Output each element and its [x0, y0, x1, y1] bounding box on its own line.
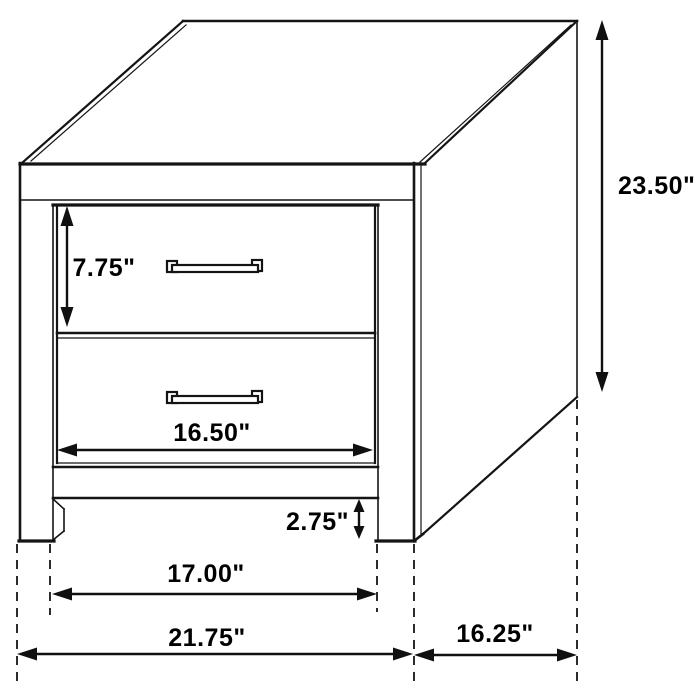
- arrowhead-left: [414, 649, 434, 662]
- handle-bar: [172, 396, 258, 403]
- dim-label-drawer-opening-width: 16.50": [173, 419, 250, 447]
- handle-bar: [172, 265, 258, 272]
- dim-overall-height: 23.50": [596, 20, 696, 392]
- left-leg-foot-detail: [53, 499, 64, 540]
- foot-top-diagonal: [53, 499, 64, 509]
- arrowhead-right: [393, 648, 413, 661]
- arrowhead-left: [52, 588, 72, 601]
- arrowhead-right: [357, 588, 377, 601]
- dim-label-foot-clearance: 2.75": [286, 508, 349, 536]
- foot-bottom-diagonal: [53, 531, 64, 540]
- dim-foot-clearance: 2.75": [286, 499, 365, 539]
- dim-label-overall-height: 23.50": [618, 172, 695, 200]
- dim-side-depth: 16.25": [414, 620, 577, 662]
- dim-label-between-legs-width: 17.00": [167, 560, 244, 588]
- arrowhead-up: [596, 20, 609, 40]
- dim-label-side-depth: 16.25": [456, 620, 533, 648]
- dim-label-overall-width: 21.75": [168, 624, 245, 652]
- arrowhead-down: [354, 526, 365, 539]
- front-panel-fill: [20, 163, 414, 541]
- dim-overall-width: 21.75": [17, 624, 413, 661]
- arrowhead-right: [557, 649, 577, 662]
- arrowhead-left: [17, 648, 37, 661]
- dim-label-drawer-face-height: 7.75": [72, 254, 135, 282]
- dim-between-legs-width: 17.00": [52, 560, 377, 601]
- nightstand-drawing: 23.50" 7.75" 16.50" 2.75" 17.00" 21.75": [0, 0, 700, 700]
- dimension-diagram: 23.50" 7.75" 16.50" 2.75" 17.00" 21.75": [0, 0, 700, 700]
- arrowhead-down: [596, 372, 609, 392]
- arrowhead-up: [354, 499, 365, 512]
